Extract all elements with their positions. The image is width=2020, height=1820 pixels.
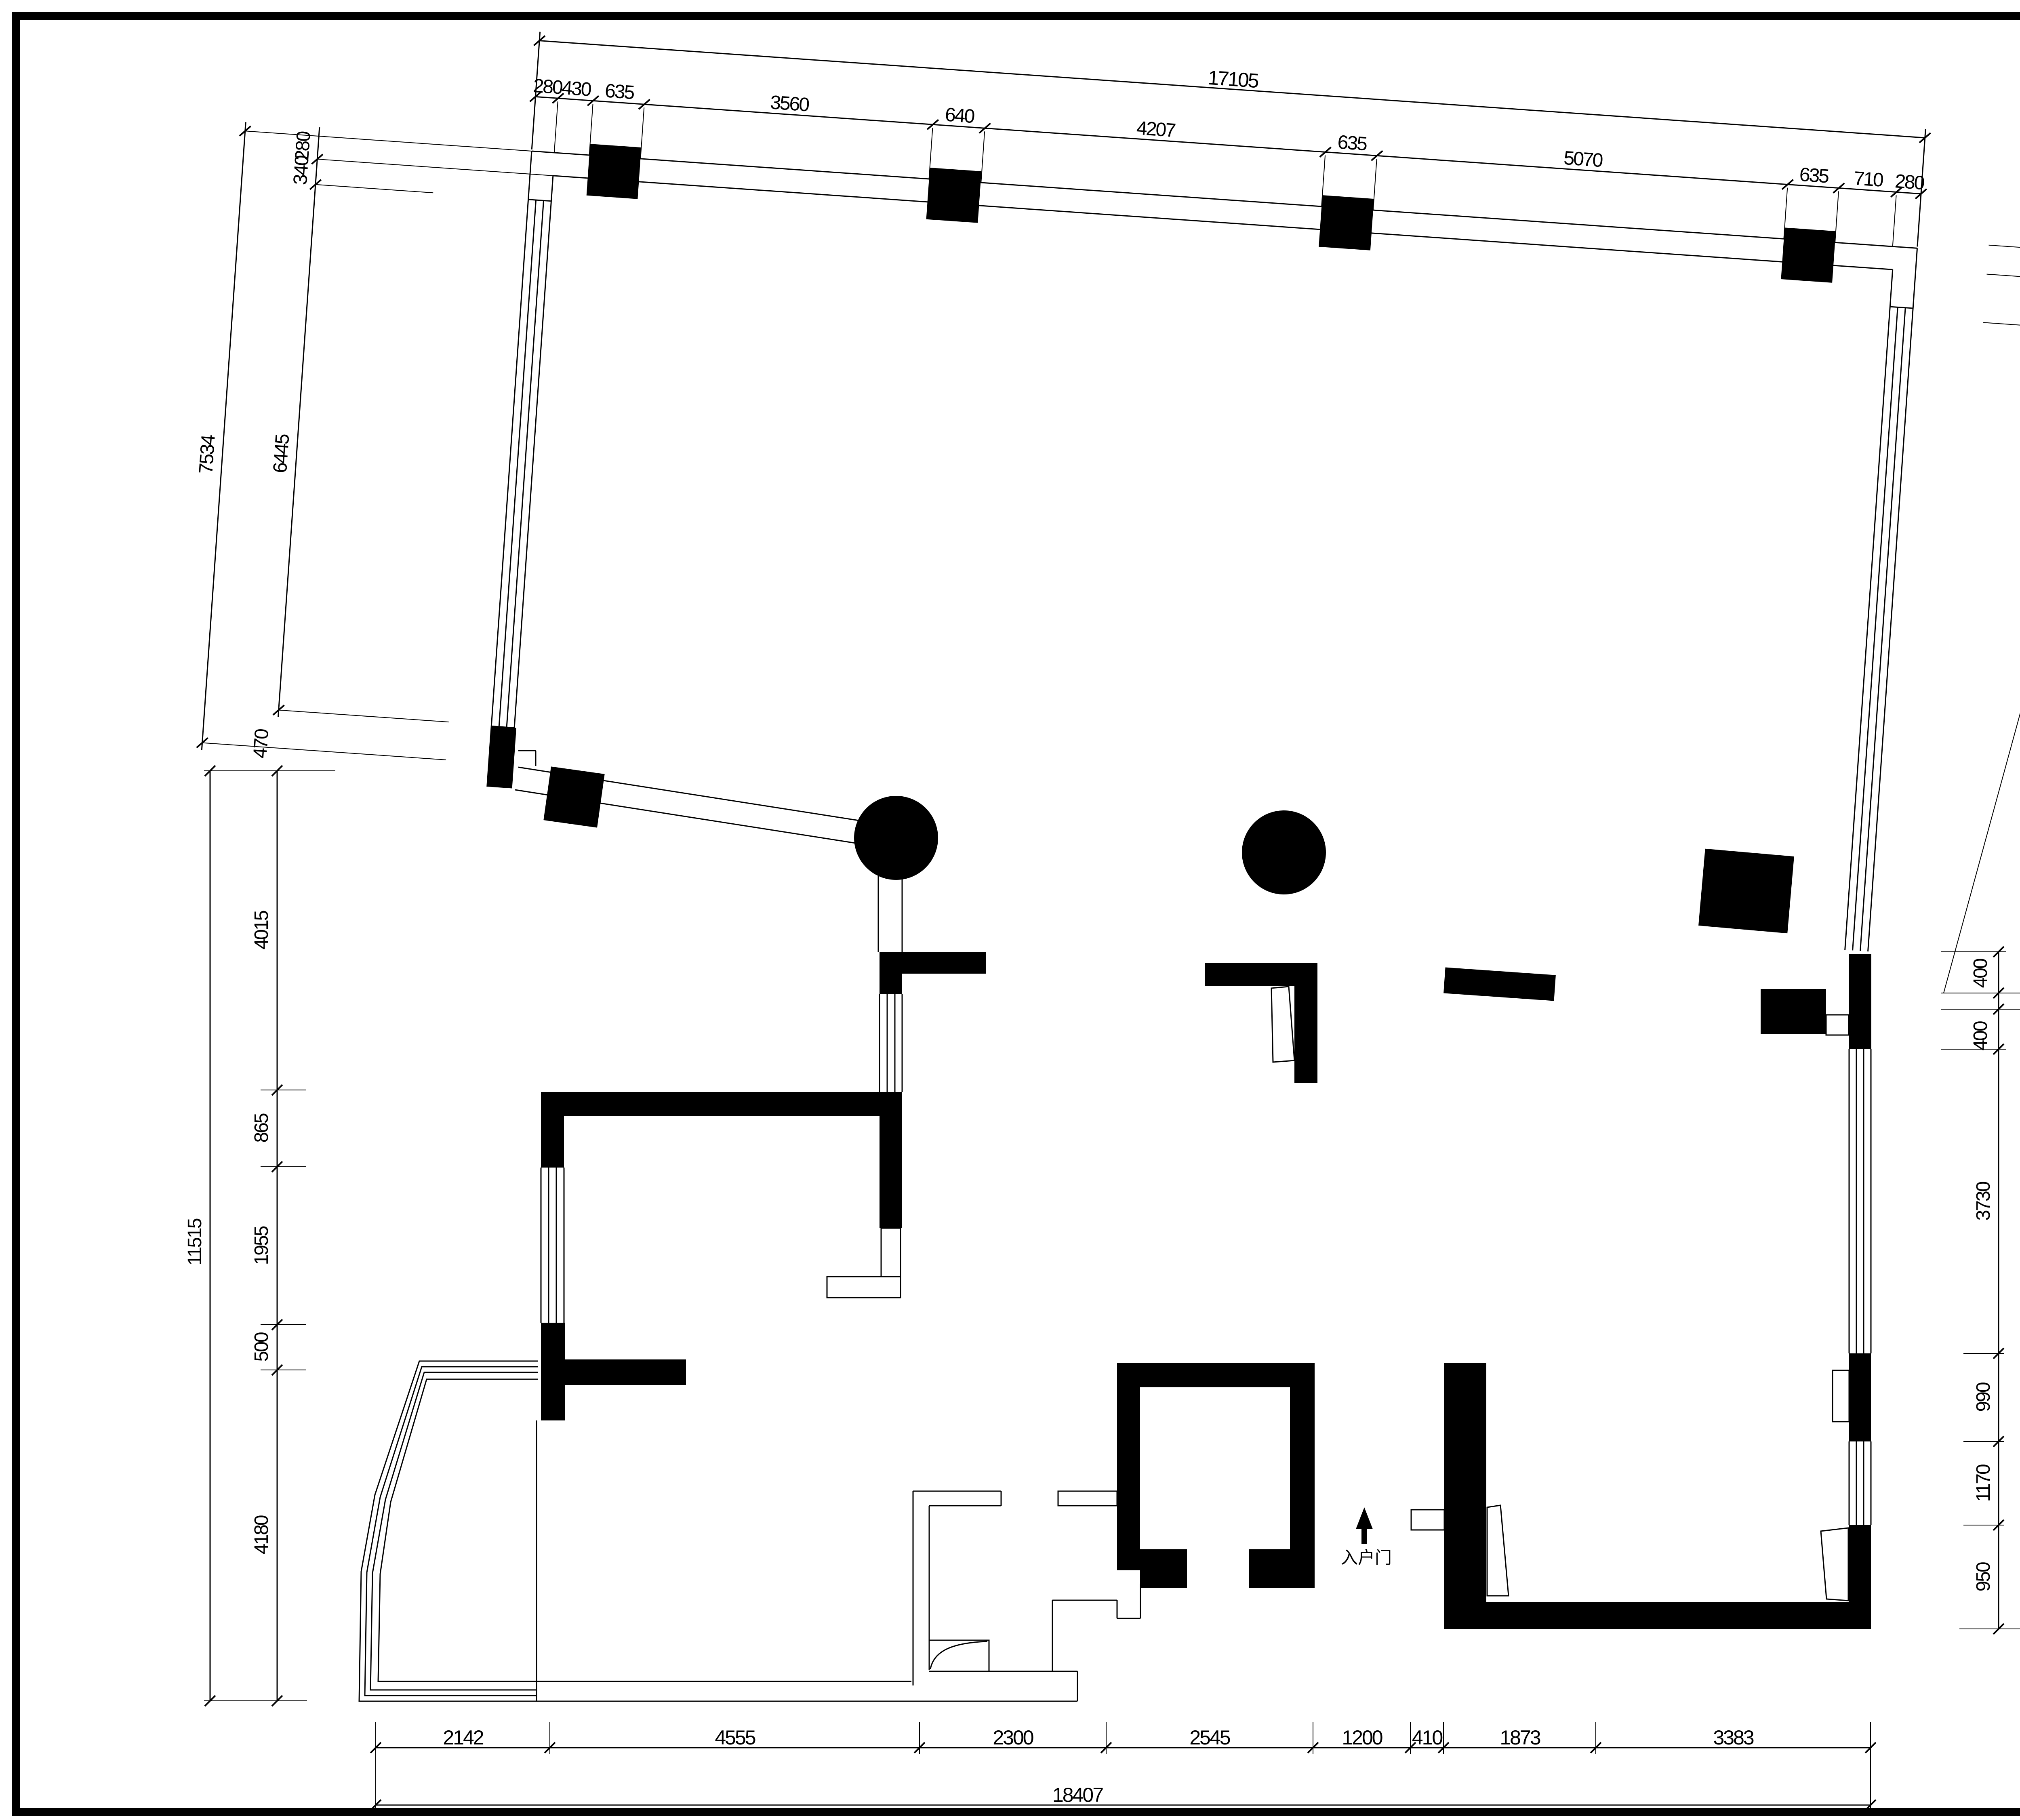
svg-text:340: 340 — [290, 155, 313, 186]
svg-text:1170: 1170 — [1973, 1464, 1994, 1502]
svg-text:865: 865 — [251, 1113, 272, 1142]
svg-text:17105: 17105 — [1207, 66, 1259, 93]
svg-text:990: 990 — [1973, 1382, 1994, 1412]
svg-text:635: 635 — [604, 80, 635, 103]
svg-text:950: 950 — [1973, 1562, 1994, 1591]
svg-text:11515: 11515 — [184, 1218, 206, 1265]
svg-text:470: 470 — [249, 728, 273, 759]
svg-text:5070: 5070 — [1563, 147, 1603, 172]
svg-text:640: 640 — [944, 104, 975, 127]
svg-text:410: 410 — [1412, 1726, 1443, 1749]
svg-text:1873: 1873 — [1500, 1726, 1540, 1749]
svg-text:3730: 3730 — [1973, 1182, 1994, 1220]
svg-text:18407: 18407 — [1052, 1784, 1103, 1806]
svg-text:500: 500 — [251, 1332, 272, 1361]
svg-text:1955: 1955 — [251, 1226, 272, 1265]
svg-text:2545: 2545 — [1189, 1726, 1230, 1749]
svg-text:400: 400 — [1970, 959, 1991, 988]
svg-text:280: 280 — [1894, 170, 1925, 194]
svg-text:280: 280 — [532, 75, 563, 99]
svg-text:3383: 3383 — [1713, 1726, 1753, 1749]
svg-text:7534: 7534 — [195, 434, 219, 475]
svg-text:4015: 4015 — [251, 911, 272, 949]
svg-text:635: 635 — [1799, 164, 1829, 187]
svg-text:3560: 3560 — [770, 92, 810, 116]
svg-text:2300: 2300 — [993, 1726, 1033, 1749]
svg-text:635: 635 — [1337, 132, 1368, 155]
svg-text:430: 430 — [561, 77, 592, 101]
svg-text:710: 710 — [1853, 168, 1884, 191]
svg-text:4180: 4180 — [251, 1515, 272, 1554]
svg-text:6445: 6445 — [269, 433, 294, 474]
svg-text:1200: 1200 — [1342, 1726, 1382, 1749]
svg-text:入户门: 入户门 — [1341, 1548, 1392, 1567]
svg-text:2142: 2142 — [443, 1726, 483, 1749]
svg-text:4207: 4207 — [1136, 118, 1176, 142]
svg-text:4555: 4555 — [715, 1726, 755, 1749]
svg-text:400: 400 — [1970, 1021, 1991, 1050]
